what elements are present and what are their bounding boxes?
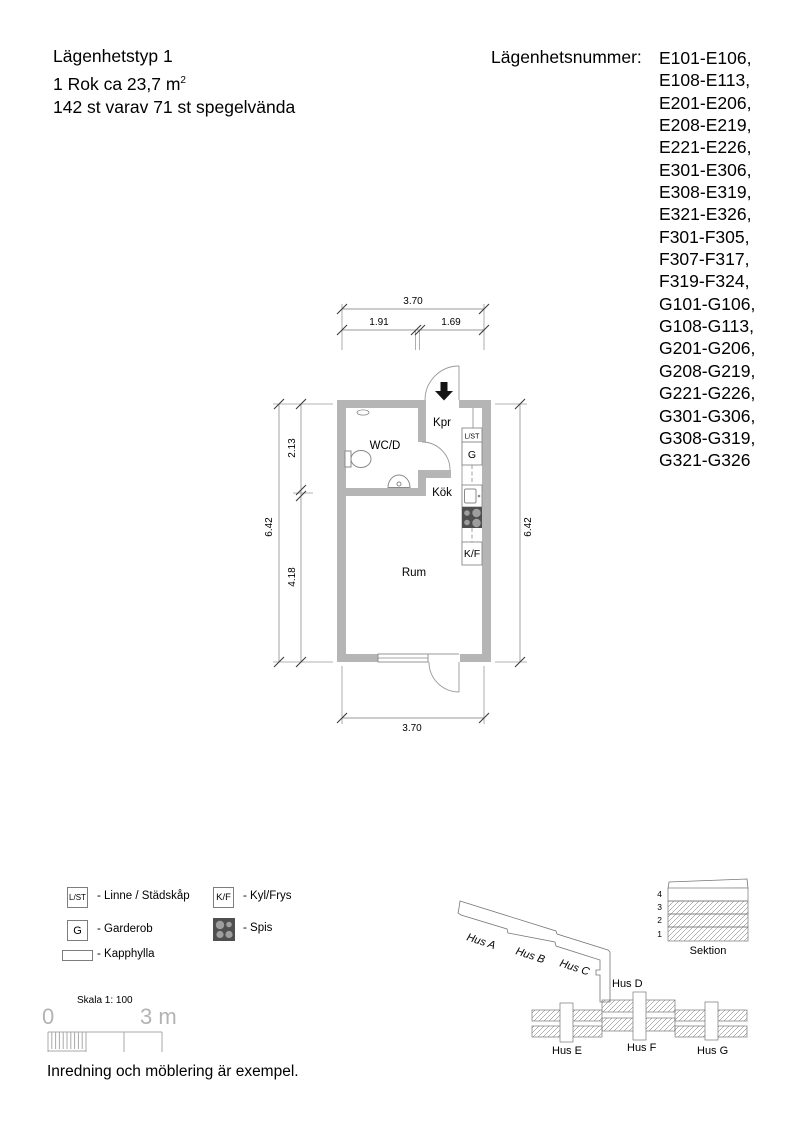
site-stair-g [705, 1002, 718, 1040]
apartment-number-range: E108-E113, [659, 69, 755, 91]
label-hus-c: Hus C [558, 957, 591, 978]
dim-top-left: 1.91 [369, 317, 389, 328]
apartment-number-range: E101-E106, [659, 47, 755, 69]
apartment-number-range: G321-G326 [659, 449, 755, 471]
site-stair-f [633, 992, 646, 1040]
label-kf: K/F [464, 548, 480, 560]
label-lst: L/ST [465, 434, 481, 441]
apartment-number-range: G221-G226, [659, 382, 755, 404]
apartment-number-range: G208-G219, [659, 360, 755, 382]
dim-bottom-total: 3.70 [402, 723, 422, 734]
apartment-type-header: Lägenhetstyp 1 1 Rok ca 23,7 m2 142 st v… [53, 45, 295, 119]
label-hus-e: Hus E [552, 1045, 582, 1057]
label-kpr: Kpr [433, 417, 451, 429]
legend-spis-label: - Spis [243, 922, 272, 934]
dim-left-total: 6.42 [264, 517, 275, 537]
washbasin [388, 475, 410, 488]
apartment-size-line: 1 Rok ca 23,7 m2 [53, 69, 295, 96]
stove [462, 507, 482, 528]
apartment-number-range: E321-E326, [659, 203, 755, 225]
floor-plan-sheet: Lägenhetstyp 1 1 Rok ca 23,7 m2 142 st v… [0, 0, 800, 1132]
legend-lst-symbol: L/ST [67, 887, 88, 908]
apartment-number-range: G201-G206, [659, 337, 755, 359]
apartment-count-line: 142 st varav 71 st spegelvända [53, 96, 295, 120]
label-hus-d: Hus D [612, 978, 643, 990]
dim-left-lower: 4.18 [287, 567, 298, 587]
apartment-number-range: E208-E219, [659, 114, 755, 136]
apartment-number-range: E221-E226, [659, 136, 755, 158]
label-wcd: WC/D [370, 440, 401, 452]
label-kok: Kök [432, 487, 452, 499]
site-row-efg [532, 992, 747, 1042]
apartment-number-range: G301-G306, [659, 405, 755, 427]
apartment-number-range: G308-G319, [659, 427, 755, 449]
kitchen-sink [462, 485, 482, 507]
balcony-door [428, 654, 459, 692]
apartment-type-title: Lägenhetstyp 1 [53, 45, 295, 69]
square-meter-sup: 2 [180, 75, 186, 86]
section-diagram: 4 3 2 1 Sektion [657, 879, 748, 957]
legend-kf-label: - Kyl/Frys [243, 890, 292, 902]
dim-right-total: 6.42 [523, 517, 534, 537]
section-floor-labels: 4 3 2 1 [657, 889, 662, 939]
legend-spis-icon [213, 918, 235, 941]
floor-plan-drawing: 3.70 1.91 1.69 6.42 2.13 4.18 6.42 3.70 [255, 290, 545, 750]
floor-4: 4 [657, 889, 662, 899]
floor-2: 2 [657, 915, 662, 925]
scale-end-label: 3 m [140, 1004, 177, 1030]
apartment-number-range: F319-F324, [659, 270, 755, 292]
dim-top-right: 1.69 [441, 317, 461, 328]
apartment-number-range: E301-E306, [659, 159, 755, 181]
scale-title: Skala 1: 100 [77, 995, 133, 1006]
entrance-arrow-icon [435, 382, 453, 401]
label-hus-g: Hus G [697, 1045, 728, 1057]
apartment-number-range: G101-G106, [659, 293, 755, 315]
scale-ruler [45, 1030, 170, 1058]
legend-lst-label: - Linne / Städskåp [97, 890, 190, 902]
apartment-number-range: E201-E206, [659, 92, 755, 114]
apartment-number-range: G108-G113, [659, 315, 755, 337]
legend-kapphylla-label: - Kapphylla [97, 948, 155, 960]
apartment-numbers-label: Lägenhetsnummer: [491, 47, 642, 68]
site-plan: Hus A Hus B Hus C Hus D Hus E Hus F Hus … [440, 870, 770, 1070]
scale-zero-label: 0 [42, 1004, 54, 1030]
dim-top-total: 3.70 [403, 296, 423, 307]
window [378, 654, 428, 662]
legend-kapphylla-symbol [62, 950, 93, 961]
floor-3: 3 [657, 902, 662, 912]
apartment-number-range: F301-F305, [659, 226, 755, 248]
apartment-number-range: E308-E319, [659, 181, 755, 203]
apartment-numbers-list: E101-E106,E108-E113,E201-E206,E208-E219,… [659, 47, 755, 472]
label-hus-a: Hus A [465, 931, 497, 952]
dim-left-upper: 2.13 [287, 438, 298, 458]
section-label: Sektion [690, 945, 727, 957]
label-hus-f: Hus F [627, 1042, 657, 1054]
footer-note: Inredning och möblering är exempel. [47, 1063, 299, 1081]
wc-door [422, 442, 450, 470]
dimension-labels: 3.70 1.91 1.69 6.42 2.13 4.18 6.42 3.70 [264, 296, 534, 734]
toilet [345, 451, 371, 468]
legend-garderob-symbol: G [67, 920, 88, 941]
apartment-number-range: F307-F317, [659, 248, 755, 270]
legend-kf-symbol: K/F [213, 887, 234, 908]
label-g: G [468, 449, 476, 461]
kitchen-column [462, 408, 482, 565]
section-roof [668, 879, 748, 889]
label-rum: Rum [402, 567, 426, 579]
label-hus-b: Hus B [514, 945, 546, 966]
floor-drain-icon [357, 410, 369, 415]
floor-1: 1 [657, 929, 662, 939]
legend-garderob-label: - Garderob [97, 923, 153, 935]
site-stair-e [560, 1003, 573, 1042]
